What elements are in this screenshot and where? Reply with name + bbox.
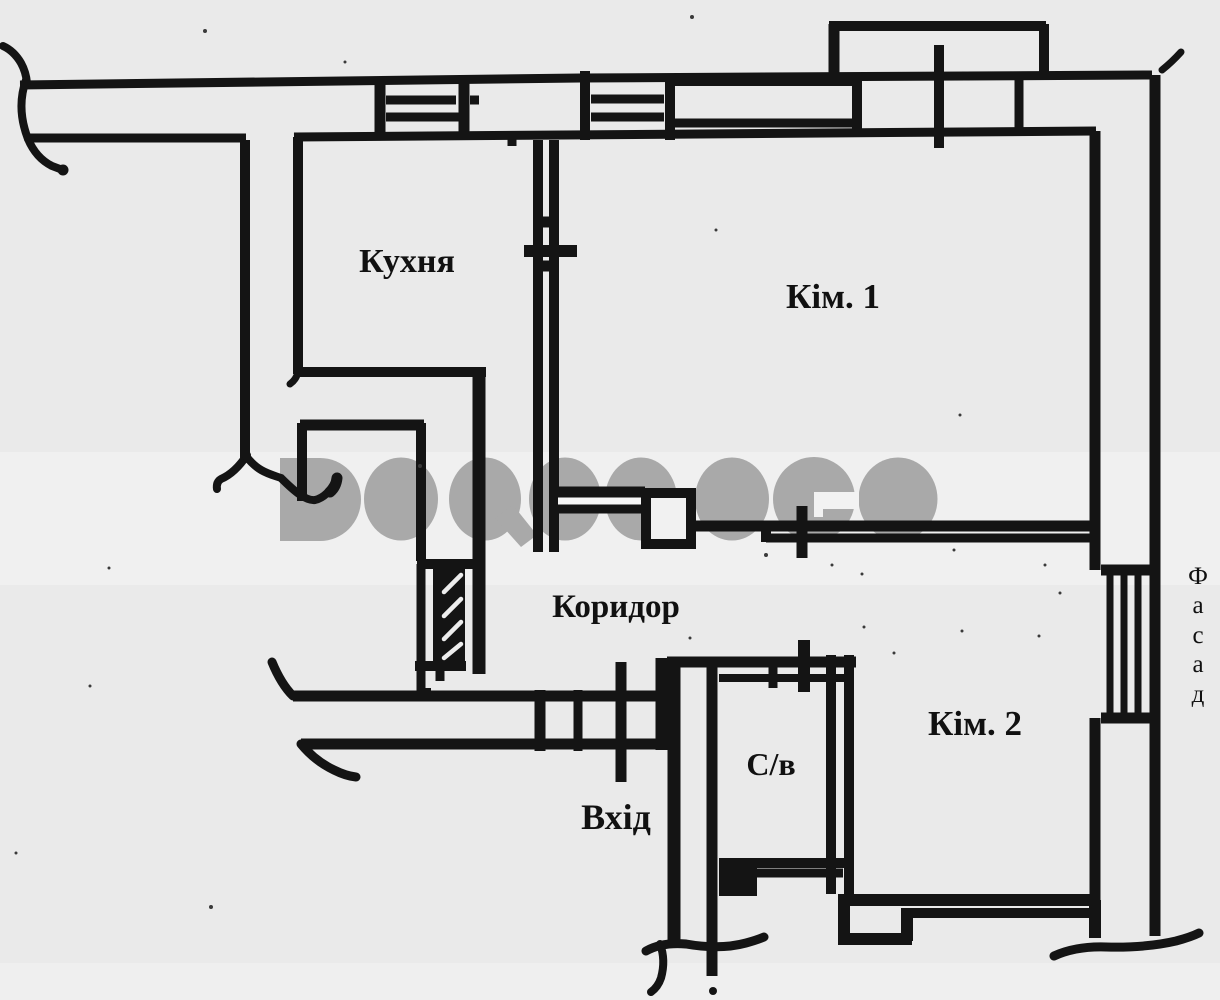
svg-text:С/в: С/в bbox=[746, 746, 795, 782]
svg-text:Вхід: Вхід bbox=[581, 797, 651, 837]
svg-text:а: а bbox=[1192, 592, 1203, 619]
svg-text:Кім. 1: Кім. 1 bbox=[786, 277, 880, 316]
svg-text:Ф: Ф bbox=[1188, 563, 1208, 590]
svg-text:Кім. 2: Кім. 2 bbox=[928, 704, 1022, 743]
svg-text:а: а bbox=[1192, 651, 1203, 678]
svg-text:Кухня: Кухня bbox=[359, 243, 455, 280]
svg-text:д: д bbox=[1192, 681, 1205, 708]
svg-text:с: с bbox=[1192, 622, 1203, 649]
svg-text:Коридор: Коридор bbox=[552, 589, 680, 625]
